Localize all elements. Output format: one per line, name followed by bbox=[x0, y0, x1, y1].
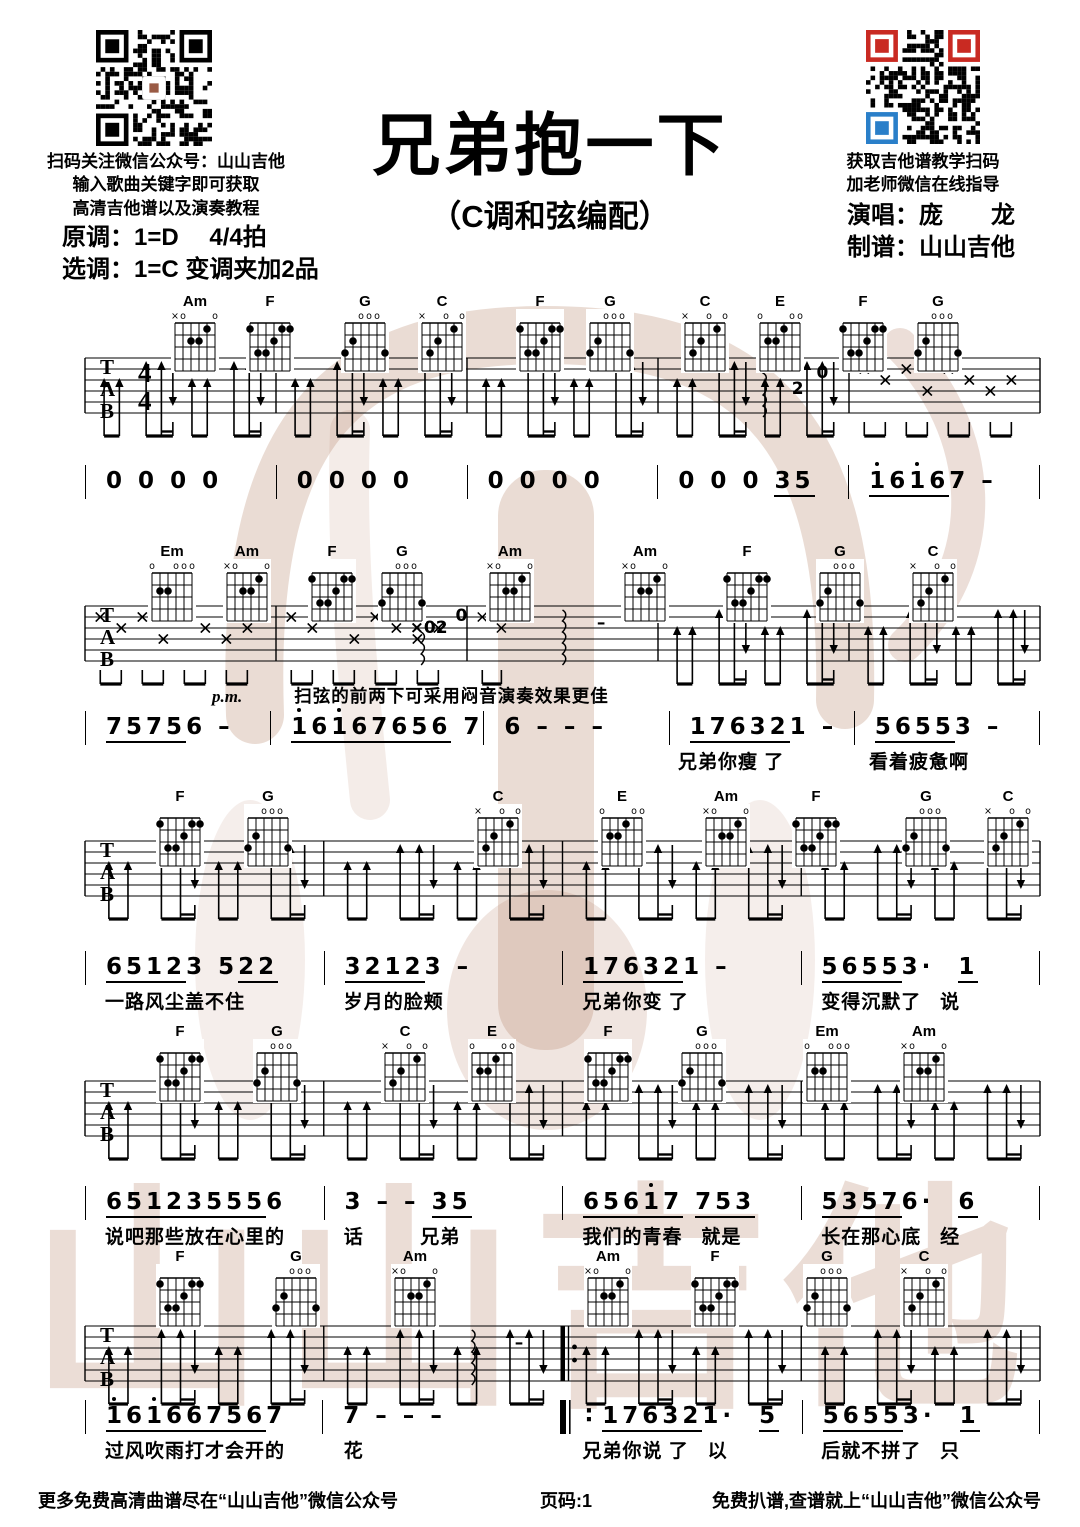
jianpu-measure: 56553· 1 bbox=[802, 951, 1041, 985]
svg-text:o: o bbox=[941, 1041, 947, 1052]
svg-text:×: × bbox=[486, 561, 494, 572]
svg-text:o: o bbox=[403, 561, 409, 572]
svg-text:o: o bbox=[406, 1041, 412, 1052]
jianpu-notes: 7 – – – bbox=[343, 1403, 559, 1429]
svg-text:×: × bbox=[984, 806, 992, 817]
svg-text:o: o bbox=[639, 806, 645, 817]
svg-text:o: o bbox=[173, 561, 179, 572]
svg-text:o: o bbox=[711, 806, 717, 817]
svg-text:o: o bbox=[935, 806, 941, 817]
jianpu-row: 65123 52232123 –176321 –56553· 1一路风尘盖不住岁… bbox=[85, 951, 1040, 1014]
jianpu-measure: 3 – – 35 bbox=[325, 1186, 564, 1220]
svg-text:C: C bbox=[437, 293, 448, 310]
jianpu-measure: 16167 – bbox=[849, 465, 1040, 499]
footer-right: 免费扒谱,查谱就上“山山吉他”微信公众号 bbox=[712, 1487, 1041, 1513]
qr-left-caption: 扫码关注微信公众号：山山吉他输入歌曲关键字即可获取高清吉他谱以及演奏教程 bbox=[16, 150, 316, 220]
svg-text:B: B bbox=[100, 647, 114, 671]
svg-text:T: T bbox=[100, 838, 114, 862]
svg-text:o: o bbox=[459, 311, 465, 322]
svg-text:o: o bbox=[836, 1041, 842, 1052]
jianpu-measure: 651235556 bbox=[86, 1186, 325, 1220]
svg-text:o: o bbox=[619, 311, 625, 322]
jianpu-measure: 0 0 0 0 bbox=[277, 465, 468, 499]
chord-diagram-f: F bbox=[510, 293, 570, 375]
svg-text:o: o bbox=[789, 311, 795, 322]
credit-line: 制谱：山山吉他 bbox=[847, 232, 1015, 264]
svg-text:o: o bbox=[374, 311, 380, 322]
svg-text:o: o bbox=[603, 311, 609, 322]
svg-text:o: o bbox=[411, 561, 417, 572]
svg-text:o: o bbox=[927, 806, 933, 817]
chord-diagram-g: Gooo bbox=[896, 788, 956, 870]
svg-text:o: o bbox=[469, 1041, 475, 1052]
svg-text:o: o bbox=[395, 561, 401, 572]
svg-text:o: o bbox=[515, 806, 521, 817]
lyric-row: 兄弟你瘦 了看着疲惫啊 bbox=[85, 745, 1040, 774]
technique-tip: 扫弦的前两下可采用闷音演奏效果更佳 bbox=[294, 683, 609, 708]
svg-text:o: o bbox=[925, 1266, 931, 1277]
svg-text:o: o bbox=[366, 311, 372, 322]
svg-text:o: o bbox=[934, 561, 940, 572]
chord-diagram-em: Emoooo bbox=[142, 543, 202, 625]
jianpu-measure: ∶176321· 5 bbox=[561, 1400, 803, 1434]
jianpu-notes: 6 – – – bbox=[504, 714, 668, 740]
jianpu-notes: 176321 – bbox=[690, 714, 854, 740]
chord-diagram-f: F bbox=[150, 1023, 210, 1105]
chord-diagram-f: F bbox=[302, 543, 362, 625]
svg-text:×: × bbox=[900, 1041, 908, 1052]
svg-text:B: B bbox=[100, 1122, 114, 1146]
svg-text:o: o bbox=[711, 1041, 717, 1052]
chord-diagram-g: Gooo bbox=[238, 788, 298, 870]
jianpu-measure: 0 0 0 0 bbox=[468, 465, 659, 499]
svg-text:G: G bbox=[290, 1248, 302, 1265]
svg-text:B: B bbox=[100, 1367, 114, 1391]
chord-diagram-e: Eooo bbox=[462, 1023, 522, 1105]
svg-text:A: A bbox=[100, 625, 116, 649]
tab-mark: – bbox=[515, 1333, 524, 1353]
chord-diagram-f: F bbox=[717, 543, 777, 625]
svg-text:o: o bbox=[828, 1266, 834, 1277]
svg-text:o: o bbox=[841, 561, 847, 572]
svg-text:×: × bbox=[418, 311, 426, 322]
qr-right-caption: 获取吉他谱教学扫码加老师微信在线指导 bbox=[790, 150, 1056, 197]
lyric-row: 过风吹雨打才会开的花兄弟你说 了 以后就不拼了 只 bbox=[85, 1434, 1040, 1463]
svg-text:o: o bbox=[836, 1266, 842, 1277]
chord-diagram-g: Gooo bbox=[580, 293, 640, 375]
tab-mark: 0 bbox=[456, 606, 468, 626]
lyric-cell: 长在那心底 经 bbox=[801, 1220, 1040, 1249]
chord-diagram-f: F bbox=[685, 1248, 745, 1330]
chord-diagram-g: Gooo bbox=[810, 543, 870, 625]
svg-text:C: C bbox=[919, 1248, 930, 1265]
svg-text:o: o bbox=[1009, 806, 1015, 817]
svg-text:o: o bbox=[289, 1266, 295, 1277]
tab-mark: 2 bbox=[792, 379, 804, 399]
svg-text:o: o bbox=[804, 1041, 810, 1052]
svg-text:C: C bbox=[1003, 788, 1014, 805]
chord-diagram-c: C×oo bbox=[894, 1248, 954, 1330]
page-number: 页码:1 bbox=[540, 1487, 592, 1513]
jianpu-notes: 16167 – bbox=[869, 468, 1039, 494]
svg-text:Am: Am bbox=[714, 788, 738, 805]
chord-diagram-e: Eooo bbox=[750, 293, 810, 375]
svg-text:G: G bbox=[262, 788, 274, 805]
svg-text:o: o bbox=[947, 311, 953, 322]
credits: 演唱：庞 龙制谱：山山吉他 bbox=[847, 200, 1015, 265]
svg-text:o: o bbox=[501, 1041, 507, 1052]
svg-text:E: E bbox=[775, 293, 785, 310]
svg-text:o: o bbox=[277, 806, 283, 817]
footer-left: 更多免费高清曲谱尽在“山山吉他”微信公众号 bbox=[38, 1487, 398, 1513]
chord-diagram-am: Am×oo bbox=[217, 543, 277, 625]
jianpu-measure: 176321 – bbox=[670, 711, 855, 745]
svg-text:o: o bbox=[278, 1041, 284, 1052]
lyric-cell: 后就不拼了 只 bbox=[801, 1434, 1040, 1463]
svg-text:G: G bbox=[271, 1023, 283, 1040]
song-title: 兄弟抱一下 bbox=[290, 90, 810, 189]
svg-text:o: o bbox=[797, 311, 803, 322]
svg-text:C: C bbox=[493, 788, 504, 805]
chord-diagram-c: C×oo bbox=[412, 293, 472, 375]
jianpu-measure: 176321 – bbox=[563, 951, 802, 985]
svg-text:G: G bbox=[696, 1023, 708, 1040]
lyric-cell: 兄弟你变 了 bbox=[563, 985, 802, 1014]
svg-text:×: × bbox=[391, 1266, 399, 1277]
lyric-cell: 花 bbox=[324, 1434, 563, 1463]
jianpu-row: 1616675677 – – –∶176321· 556553· 1过风吹雨打才… bbox=[85, 1400, 1040, 1463]
svg-text:F: F bbox=[811, 788, 820, 805]
svg-text:o: o bbox=[950, 561, 956, 572]
svg-text:Am: Am bbox=[235, 543, 259, 560]
sheet-page: 山山吉他 扫码关注微信公众号：山山吉他输入歌曲关键字即可获取高清吉他谱以及演奏教… bbox=[0, 0, 1080, 1527]
credit-line: 演唱：庞 龙 bbox=[847, 200, 1015, 232]
svg-text:o: o bbox=[432, 1266, 438, 1277]
jianpu-notes: 651235556 bbox=[106, 1189, 324, 1215]
lyric-cell: 兄弟你说 了 以 bbox=[563, 1434, 802, 1463]
qr-caption-line: 输入歌曲关键字即可获取 bbox=[16, 173, 316, 196]
jianpu-measure: 56553 – bbox=[855, 711, 1040, 745]
chord-diagram-am: Am×oo bbox=[894, 1023, 954, 1105]
svg-text:o: o bbox=[422, 1041, 428, 1052]
svg-text:F: F bbox=[327, 543, 336, 560]
svg-text:Am: Am bbox=[498, 543, 522, 560]
jianpu-measure: 16167656 7 bbox=[271, 711, 484, 745]
jianpu-notes: 0 0 0 0 bbox=[106, 468, 276, 494]
tab-mark: – bbox=[597, 613, 606, 633]
lyric-cell: 一路风尘盖不住 bbox=[85, 985, 324, 1014]
svg-text:o: o bbox=[149, 561, 155, 572]
chord-diagram-g: Gooo bbox=[266, 1248, 326, 1330]
jianpu-notes: 65123 522 bbox=[106, 954, 324, 980]
chord-diagram-f: F bbox=[786, 788, 846, 870]
svg-text:F: F bbox=[535, 293, 544, 310]
svg-text:×: × bbox=[223, 561, 231, 572]
svg-text:4: 4 bbox=[138, 386, 152, 416]
lyric-cell: 看着疲惫啊 bbox=[849, 745, 1040, 774]
svg-text:o: o bbox=[264, 561, 270, 572]
chord-diagram-c: C×oo bbox=[903, 543, 963, 625]
svg-text:o: o bbox=[919, 806, 925, 817]
chord-diagram-g: Gooo bbox=[908, 293, 968, 375]
jianpu-measure: 0 0 0 35 bbox=[658, 465, 849, 499]
svg-text:C: C bbox=[400, 1023, 411, 1040]
chord-diagram-am: Am×oo bbox=[165, 293, 225, 375]
qr-caption-line: 高清吉他谱以及演奏教程 bbox=[16, 197, 316, 220]
svg-text:o: o bbox=[181, 561, 187, 572]
svg-text:o: o bbox=[625, 1266, 631, 1277]
jianpu-notes: 32123 – bbox=[345, 954, 563, 980]
chord-diagram-c: C×oo bbox=[675, 293, 735, 375]
lyric-cell bbox=[467, 499, 658, 501]
svg-text:E: E bbox=[487, 1023, 497, 1040]
svg-text:Em: Em bbox=[160, 543, 183, 560]
svg-text:o: o bbox=[527, 561, 533, 572]
lyric-cell bbox=[467, 745, 658, 774]
jianpu-measure: 7 – – – bbox=[323, 1400, 560, 1434]
lyric-row: 说吧那些放在心里的话 兄弟我们的青春 就是长在那心底 经 bbox=[85, 1220, 1040, 1249]
svg-text:o: o bbox=[630, 561, 636, 572]
lyric-cell bbox=[85, 499, 276, 501]
jianpu-notes: 3 – – 35 bbox=[345, 1189, 563, 1215]
chord-diagram-am: Am×oo bbox=[696, 788, 756, 870]
svg-text:E: E bbox=[617, 788, 627, 805]
svg-text:o: o bbox=[909, 1041, 915, 1052]
svg-text:×: × bbox=[681, 311, 689, 322]
svg-text:o: o bbox=[269, 806, 275, 817]
chord-diagram-f: F bbox=[240, 293, 300, 375]
svg-text:T: T bbox=[100, 1078, 114, 1102]
chord-diagram-g: Gooo bbox=[372, 543, 432, 625]
jianpu-measures: 0 0 0 00 0 0 00 0 0 00 0 0 3516167 – bbox=[85, 465, 1040, 499]
jianpu-notes: 65617 753 bbox=[583, 1189, 801, 1215]
chord-diagram-c: C×oo bbox=[468, 788, 528, 870]
svg-text:Em: Em bbox=[815, 1023, 838, 1040]
svg-text:F: F bbox=[175, 1248, 184, 1265]
svg-text:F: F bbox=[742, 543, 751, 560]
palm-mute-annotation: p.m.扫弦的前两下可采用闷音演奏效果更佳 bbox=[212, 683, 609, 708]
svg-text:T: T bbox=[100, 1323, 114, 1347]
qr-code-right bbox=[866, 30, 980, 144]
jianpu-measure: 53576· 6 bbox=[802, 1186, 1041, 1220]
svg-text:B: B bbox=[100, 399, 114, 423]
lyric-cell: 岁月的脸颊 bbox=[324, 985, 563, 1014]
chord-diagram-am: Am×oo bbox=[385, 1248, 445, 1330]
jianpu-measure: 65617 753 bbox=[563, 1186, 802, 1220]
svg-text:o: o bbox=[833, 561, 839, 572]
svg-text:×: × bbox=[381, 1041, 389, 1052]
svg-text:o: o bbox=[232, 561, 238, 572]
jianpu-notes: 0 0 0 0 bbox=[488, 468, 658, 494]
song-subtitle: （C调和弦编配） bbox=[290, 191, 810, 236]
svg-text:Am: Am bbox=[912, 1023, 936, 1040]
svg-text:o: o bbox=[443, 311, 449, 322]
lyric-row: 一路风尘盖不住岁月的脸颊兄弟你变 了变得沉默了 说 bbox=[85, 985, 1040, 1014]
svg-text:4: 4 bbox=[138, 358, 152, 388]
svg-text:×: × bbox=[621, 561, 629, 572]
jianpu-row: 0 0 0 00 0 0 00 0 0 00 0 0 3516167 – bbox=[85, 465, 1040, 501]
svg-text:C: C bbox=[700, 293, 711, 310]
svg-text:F: F bbox=[175, 788, 184, 805]
jianpu-notes: 0 0 0 35 bbox=[678, 468, 848, 494]
svg-text:×: × bbox=[702, 806, 710, 817]
svg-text:o: o bbox=[849, 561, 855, 572]
chord-diagram-c: C×oo bbox=[978, 788, 1038, 870]
svg-text:o: o bbox=[593, 1266, 599, 1277]
svg-text:×: × bbox=[900, 1266, 908, 1277]
chord-diagram-g: Gooo bbox=[247, 1023, 307, 1105]
jianpu-measure: 6 – – – bbox=[484, 711, 669, 745]
chord-diagram-am: Am×oo bbox=[480, 543, 540, 625]
jianpu-notes: 56553· 1 bbox=[822, 954, 1040, 980]
chord-diagram-g: Gooo bbox=[797, 1248, 857, 1330]
svg-text:×: × bbox=[171, 311, 179, 322]
svg-text:G: G bbox=[359, 293, 371, 310]
jianpu-measure: 56553· 1 bbox=[803, 1400, 1040, 1434]
jianpu-row: 75756 –16167656 76 – – –176321 –56553 –兄… bbox=[85, 711, 1040, 774]
lyric-cell: 变得沉默了 说 bbox=[801, 985, 1040, 1014]
lyric-row bbox=[85, 499, 1040, 501]
svg-text:Am: Am bbox=[183, 293, 207, 310]
jianpu-notes: 176321 – bbox=[583, 954, 801, 980]
tab-mark: 0 bbox=[817, 363, 829, 383]
svg-text:o: o bbox=[722, 311, 728, 322]
chord-diagram-em: Emoooo bbox=[797, 1023, 857, 1105]
jianpu-notes: 0 0 0 0 bbox=[297, 468, 467, 494]
jianpu-measure: 65123 522 bbox=[86, 951, 325, 985]
svg-text:o: o bbox=[358, 311, 364, 322]
jianpu-notes: 56553· 1 bbox=[823, 1403, 1039, 1429]
svg-text:T: T bbox=[100, 355, 114, 379]
chord-diagram-g: Gooo bbox=[335, 293, 395, 375]
chord-diagram-c: C×oo bbox=[375, 1023, 435, 1105]
jianpu-measures: 75756 –16167656 76 – – –176321 –56553 – bbox=[85, 711, 1040, 745]
jianpu-notes: 161667567 bbox=[106, 1403, 322, 1429]
svg-text:F: F bbox=[858, 293, 867, 310]
lyric-cell: 话 兄弟 bbox=[324, 1220, 563, 1249]
svg-text:o: o bbox=[286, 1041, 292, 1052]
key-info: 原调：1=D 4/4拍选调：1=C 变调夹加2品 bbox=[62, 222, 319, 287]
svg-text:o: o bbox=[703, 1041, 709, 1052]
chord-diagram-am: Am×oo bbox=[578, 1248, 638, 1330]
chord-diagram-am: Am×oo bbox=[615, 543, 675, 625]
svg-text:Am: Am bbox=[633, 543, 657, 560]
lyric-cell bbox=[276, 499, 467, 501]
svg-text:C: C bbox=[928, 543, 939, 560]
jianpu-notes: ∶176321· 5 bbox=[586, 1403, 802, 1429]
chord-diagram-f: F bbox=[150, 1248, 210, 1330]
svg-text:G: G bbox=[920, 788, 932, 805]
svg-text:o: o bbox=[305, 1266, 311, 1277]
svg-text:o: o bbox=[261, 806, 267, 817]
svg-text:o: o bbox=[695, 1041, 701, 1052]
svg-text:A: A bbox=[100, 377, 116, 401]
svg-text:o: o bbox=[828, 1041, 834, 1052]
jianpu-measure: 161667567 bbox=[86, 1400, 323, 1434]
lyric-cell bbox=[85, 745, 276, 774]
jianpu-row: 6512355563 – – 3565617 75353576· 6说吧那些放在… bbox=[85, 1186, 1040, 1249]
svg-text:o: o bbox=[662, 561, 668, 572]
svg-text:o: o bbox=[180, 311, 186, 322]
svg-text:Am: Am bbox=[596, 1248, 620, 1265]
qr-caption-line: 获取吉他谱教学扫码 bbox=[790, 150, 1056, 173]
svg-text:o: o bbox=[599, 806, 605, 817]
svg-text:G: G bbox=[834, 543, 846, 560]
lyric-cell: 过风吹雨打才会开的 bbox=[85, 1434, 324, 1463]
svg-text:F: F bbox=[265, 293, 274, 310]
palm-mute-label: p.m. bbox=[212, 687, 242, 707]
svg-text:o: o bbox=[757, 311, 763, 322]
svg-text:F: F bbox=[175, 1023, 184, 1040]
qr-code-left bbox=[96, 30, 212, 146]
lyric-cell: 说吧那些放在心里的 bbox=[85, 1220, 324, 1249]
svg-text:G: G bbox=[932, 293, 944, 310]
svg-text:G: G bbox=[821, 1248, 833, 1265]
svg-text:×: × bbox=[474, 806, 482, 817]
chord-diagram-f: F bbox=[578, 1023, 638, 1105]
svg-text:G: G bbox=[604, 293, 616, 310]
svg-text:o: o bbox=[631, 806, 637, 817]
svg-text:G: G bbox=[396, 543, 408, 560]
svg-text:×: × bbox=[909, 561, 917, 572]
qr-caption-line: 加老师微信在线指导 bbox=[790, 173, 1056, 196]
jianpu-measure: 32123 – bbox=[325, 951, 564, 985]
svg-text:Am: Am bbox=[403, 1248, 427, 1265]
jianpu-measures: 1616675677 – – –∶176321· 556553· 1 bbox=[85, 1400, 1040, 1434]
svg-text:o: o bbox=[820, 1266, 826, 1277]
chord-diagram-e: Eooo bbox=[592, 788, 652, 870]
svg-text:×: × bbox=[584, 1266, 592, 1277]
jianpu-notes: 53576· 6 bbox=[822, 1189, 1040, 1215]
svg-text:o: o bbox=[189, 561, 195, 572]
svg-text:o: o bbox=[611, 311, 617, 322]
jianpu-notes: 16167656 7 bbox=[291, 714, 483, 740]
lyric-cell: 兄弟你瘦 了 bbox=[658, 745, 849, 774]
jianpu-measure: 0 0 0 0 bbox=[86, 465, 277, 499]
lyric-cell bbox=[276, 745, 467, 774]
key-info-line: 选调：1=C 变调夹加2品 bbox=[62, 254, 319, 286]
jianpu-notes: 56553 – bbox=[875, 714, 1039, 740]
svg-text:o: o bbox=[509, 1041, 515, 1052]
svg-text:F: F bbox=[603, 1023, 612, 1040]
svg-text:o: o bbox=[939, 311, 945, 322]
chord-diagram-g: Gooo bbox=[672, 1023, 732, 1105]
chord-diagram-f: F bbox=[833, 293, 893, 375]
svg-text:o: o bbox=[844, 1041, 850, 1052]
svg-text:B: B bbox=[100, 882, 114, 906]
qr-caption-line: 扫码关注微信公众号：山山吉他 bbox=[16, 150, 316, 173]
svg-text:o: o bbox=[499, 806, 505, 817]
svg-text:o: o bbox=[941, 1266, 947, 1277]
svg-text:F: F bbox=[710, 1248, 719, 1265]
svg-text:o: o bbox=[743, 806, 749, 817]
chord-diagram-f: F bbox=[150, 788, 210, 870]
lyric-cell bbox=[849, 499, 1040, 501]
svg-text:o: o bbox=[400, 1266, 406, 1277]
svg-text:o: o bbox=[270, 1041, 276, 1052]
jianpu-measures: 65123 52232123 –176321 –56553· 1 bbox=[85, 951, 1040, 985]
svg-text:o: o bbox=[931, 311, 937, 322]
svg-text:o: o bbox=[706, 311, 712, 322]
lyric-cell bbox=[658, 499, 849, 501]
jianpu-notes: 75756 – bbox=[106, 714, 270, 740]
key-info-line: 原调：1=D 4/4拍 bbox=[62, 222, 319, 254]
svg-text:o: o bbox=[212, 311, 218, 322]
svg-text:o: o bbox=[297, 1266, 303, 1277]
svg-text:o: o bbox=[495, 561, 501, 572]
jianpu-measure: 75756 – bbox=[86, 711, 271, 745]
lyric-cell: 我们的青春 就是 bbox=[563, 1220, 802, 1249]
